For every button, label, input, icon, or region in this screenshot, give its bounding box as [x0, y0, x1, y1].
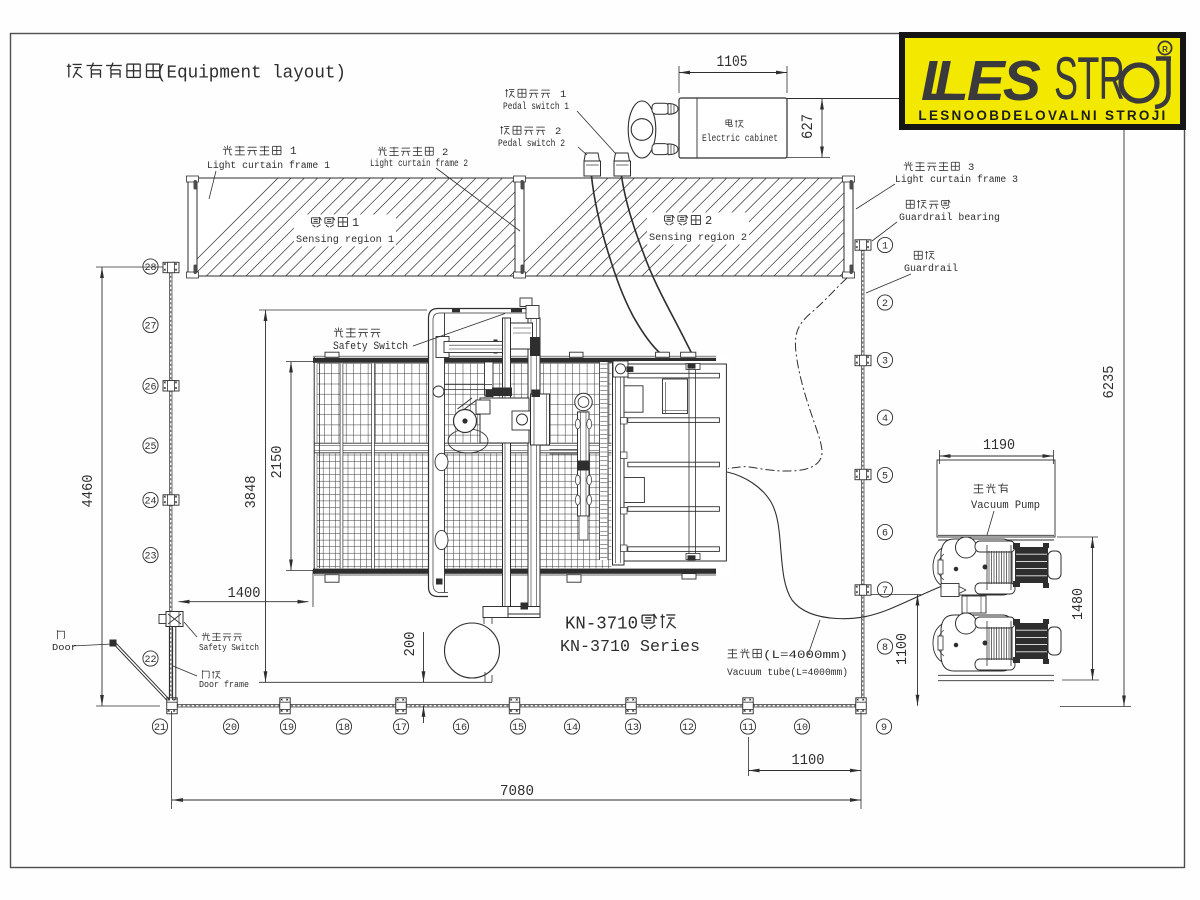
svg-text:5: 5 [882, 472, 888, 483]
svg-text:7080: 7080 [500, 783, 534, 800]
svg-text:KN-3710: KN-3710 [565, 614, 638, 635]
svg-text:Vacuum Pump: Vacuum Pump [971, 500, 1040, 512]
svg-text:(Equipment layout): (Equipment layout) [156, 63, 346, 84]
svg-text:LESNOOBDELOVALNI STROJI: LESNOOBDELOVALNI STROJI [918, 108, 1167, 123]
svg-text:Pedal switch 2: Pedal switch 2 [498, 138, 565, 150]
svg-text:18: 18 [338, 723, 350, 734]
svg-text:27: 27 [144, 322, 156, 333]
svg-text:11: 11 [742, 723, 754, 734]
svg-text:3848: 3848 [243, 476, 260, 509]
svg-text:R: R [1162, 45, 1168, 54]
svg-text:7: 7 [882, 586, 888, 597]
svg-text:12: 12 [682, 723, 694, 734]
svg-text:2: 2 [555, 126, 561, 138]
svg-text:1: 1 [882, 242, 888, 253]
svg-text:3: 3 [882, 357, 888, 368]
svg-text:Door: Door [52, 642, 77, 653]
svg-text:1: 1 [352, 216, 359, 230]
svg-text:17: 17 [395, 723, 407, 734]
svg-text:15: 15 [512, 723, 524, 734]
svg-text:Sensing region 2: Sensing region 2 [649, 232, 747, 244]
svg-text:28: 28 [144, 263, 156, 274]
svg-text:26: 26 [144, 382, 156, 393]
svg-text:1: 1 [290, 146, 297, 158]
svg-text:Light curtain frame 1: Light curtain frame 1 [207, 160, 330, 172]
svg-text:2: 2 [705, 214, 712, 228]
svg-text:4: 4 [882, 414, 888, 425]
svg-text:Sensing region 1: Sensing region 1 [296, 234, 394, 246]
svg-text:14: 14 [566, 723, 578, 734]
svg-text:1400: 1400 [228, 585, 261, 602]
svg-text:6235: 6235 [1101, 366, 1118, 399]
svg-text:(L=4000mm): (L=4000mm) [763, 650, 848, 662]
svg-text:Light curtain frame 3: Light curtain frame 3 [895, 174, 1018, 186]
svg-text:2: 2 [882, 299, 888, 310]
svg-text:2150: 2150 [270, 446, 286, 479]
svg-text:1480: 1480 [1070, 588, 1087, 620]
svg-text:3: 3 [968, 162, 974, 174]
svg-text:Light curtain frame 2: Light curtain frame 2 [370, 158, 468, 170]
svg-text:25: 25 [144, 442, 156, 453]
svg-text:1: 1 [560, 89, 566, 101]
svg-text:1100: 1100 [792, 752, 825, 769]
svg-text:Guardrail: Guardrail [904, 263, 958, 275]
svg-text:Pedal switch 1: Pedal switch 1 [503, 101, 569, 113]
svg-text:19: 19 [282, 723, 294, 734]
svg-text:Electric cabinet: Electric cabinet [702, 133, 778, 145]
svg-text:627: 627 [799, 114, 817, 139]
svg-text:Safety Switch: Safety Switch [199, 642, 259, 653]
svg-text:8: 8 [882, 643, 888, 654]
svg-text:13: 13 [627, 723, 639, 734]
svg-text:10: 10 [796, 723, 808, 734]
svg-text:4460: 4460 [80, 475, 97, 508]
svg-text:LES: LES [934, 49, 1041, 113]
svg-text:9: 9 [881, 723, 887, 734]
svg-text:20: 20 [225, 723, 237, 734]
svg-text:24: 24 [144, 497, 156, 508]
svg-text:STR: STR [1054, 46, 1124, 113]
svg-text:1190: 1190 [983, 437, 1015, 454]
svg-text:16: 16 [455, 723, 467, 734]
svg-text:22: 22 [144, 655, 156, 666]
svg-text:Safety Switch: Safety Switch [333, 341, 408, 353]
svg-text:1105: 1105 [717, 53, 748, 71]
svg-text:2: 2 [442, 147, 448, 159]
svg-text:1100: 1100 [894, 633, 911, 665]
svg-text:200: 200 [403, 632, 419, 657]
svg-text:21: 21 [154, 723, 166, 734]
svg-text:6: 6 [882, 529, 888, 540]
svg-text:Guardrail bearing: Guardrail bearing [899, 212, 1000, 224]
svg-text:23: 23 [144, 552, 156, 563]
svg-text:Door frame: Door frame [199, 679, 249, 690]
svg-text:Vacuum tube(L=4000mm): Vacuum tube(L=4000mm) [727, 667, 848, 679]
svg-text:KN-3710 Series: KN-3710 Series [560, 637, 700, 656]
